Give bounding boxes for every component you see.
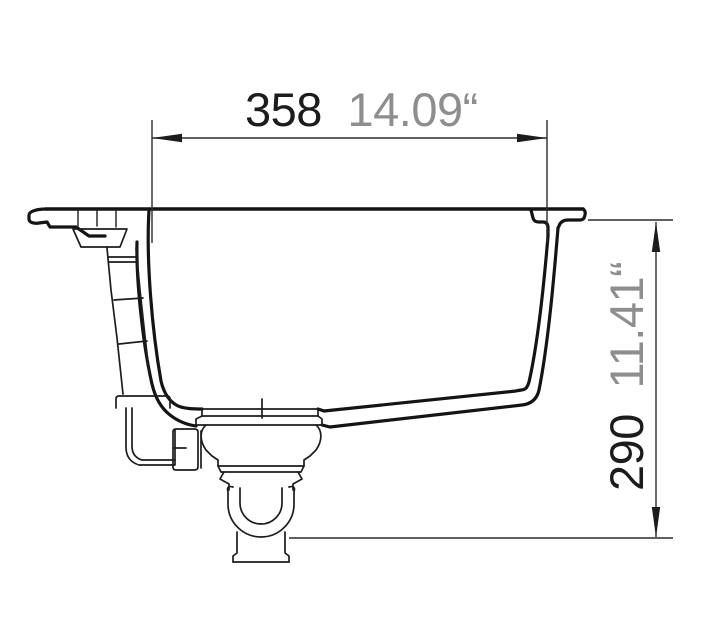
depth-mm-value: 290 xyxy=(600,414,653,491)
flange-ends xyxy=(202,409,318,416)
overflow-tube-right xyxy=(136,248,149,372)
basin-left-wall-inner xyxy=(148,210,202,409)
drain-flange xyxy=(196,399,322,425)
top-dimension: 358 14.09“ xyxy=(152,83,547,243)
arrow-down-icon xyxy=(652,507,660,537)
drawing-canvas: 358 14.09“ 290 11.41“ xyxy=(0,0,708,640)
drain-body-right xyxy=(304,425,321,466)
overflow-tube-left xyxy=(107,248,123,394)
basin-right-wall-inner xyxy=(318,236,548,411)
drain-body-left xyxy=(201,425,218,466)
depth-dimension-label: 290 11.41“ xyxy=(600,262,653,491)
width-mm-value: 358 xyxy=(245,83,322,136)
drain-assembly xyxy=(201,425,321,562)
flange-steps xyxy=(196,416,322,425)
right-dimension: 290 11.41“ xyxy=(289,220,673,538)
width-dimension-label: 358 14.09“ xyxy=(245,83,478,136)
outlet-pipe-right xyxy=(285,532,289,562)
depth-inch-value: 11.41“ xyxy=(600,262,653,389)
arrow-left-icon xyxy=(152,134,182,142)
left-lip-profile xyxy=(29,209,105,236)
arrow-right-icon xyxy=(517,134,547,142)
width-inch-value: 14.09“ xyxy=(347,83,477,136)
drain-cup-outer xyxy=(228,487,295,537)
elbow-nut xyxy=(173,429,198,470)
outlet-pipe-left xyxy=(233,532,237,562)
sink-profile xyxy=(29,209,585,427)
rim-mount-ticks xyxy=(78,211,116,227)
basin-right-wall-outer xyxy=(322,228,558,427)
elbow-outer xyxy=(126,408,175,465)
overflow-assembly xyxy=(73,211,201,470)
right-edge-profile xyxy=(558,209,585,228)
drain-body-ring xyxy=(218,466,304,472)
arrow-up-icon xyxy=(652,222,660,252)
sink-technical-drawing: 358 14.09“ 290 11.41“ xyxy=(0,0,708,640)
drain-cup-inner xyxy=(240,488,282,524)
right-rim-step xyxy=(531,210,548,236)
basin-left-wall-outer xyxy=(137,242,196,426)
